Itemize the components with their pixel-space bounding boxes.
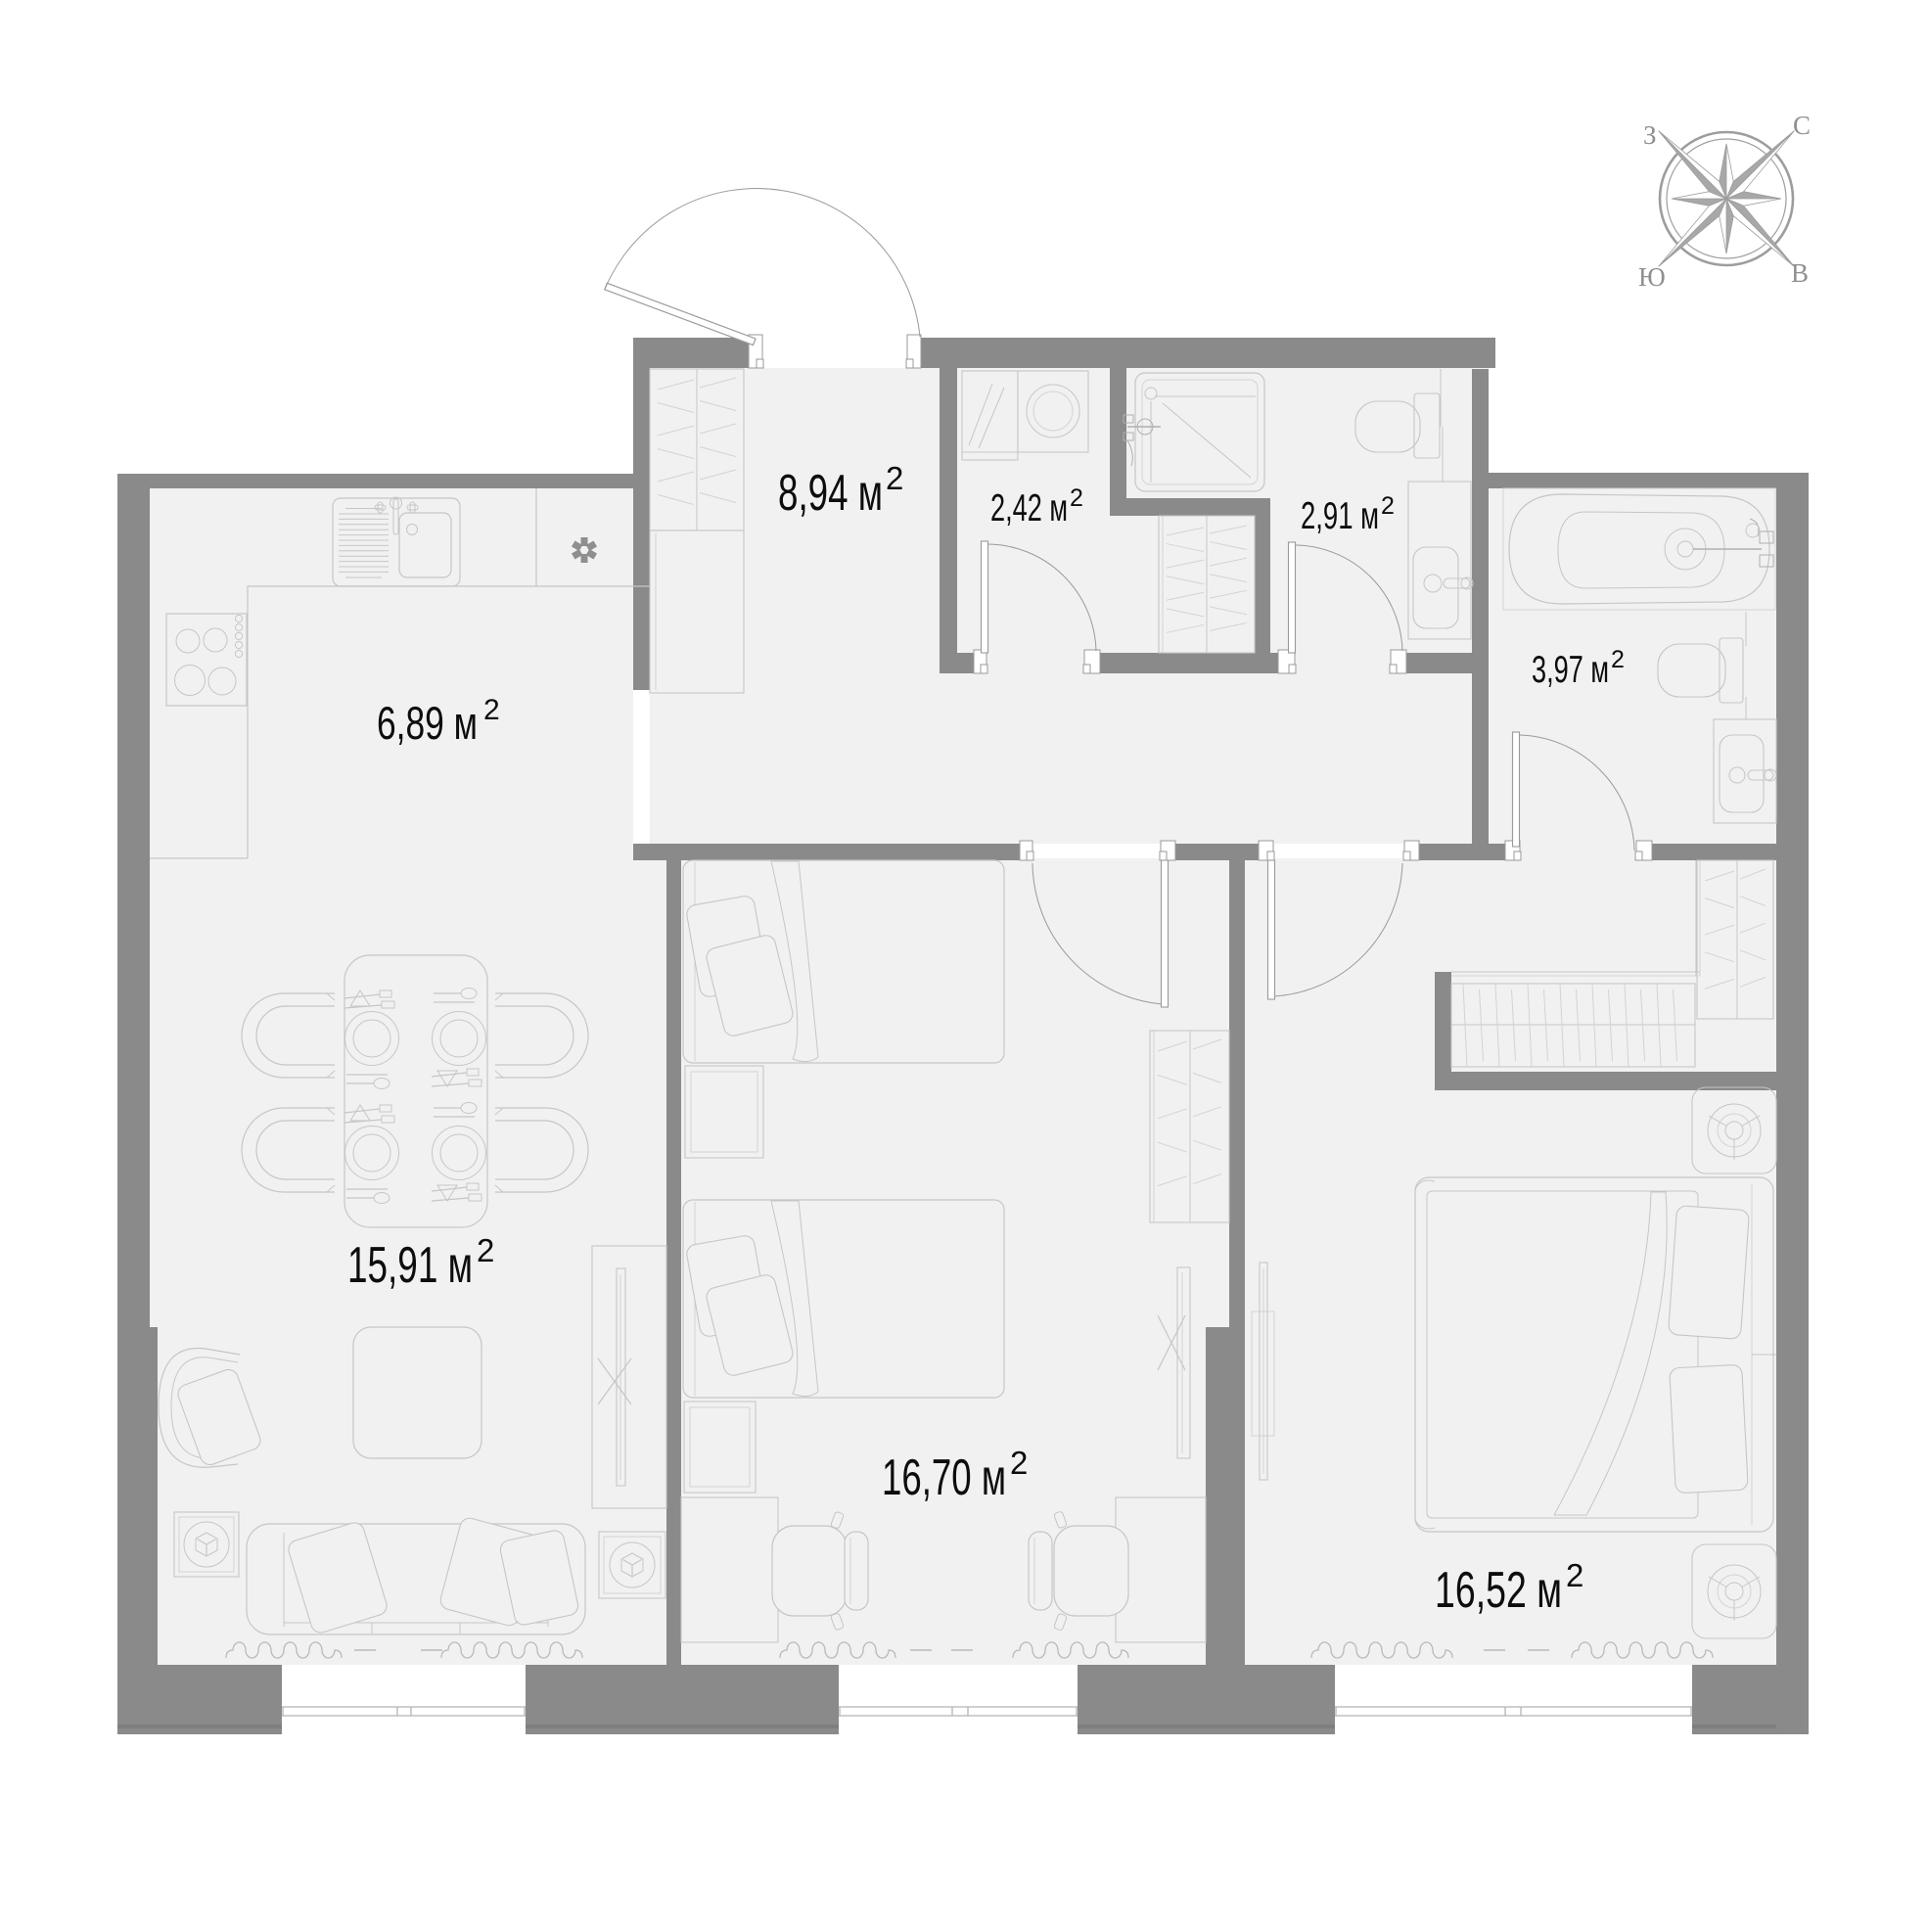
svg-text:В: В — [1791, 258, 1809, 288]
svg-text:Ю: Ю — [1638, 262, 1666, 292]
svg-text:2: 2 — [1010, 1445, 1028, 1481]
svg-text:16,70 м: 16,70 м — [882, 1449, 1006, 1506]
svg-text:3,97 м: 3,97 м — [1532, 649, 1609, 691]
svg-text:С: С — [1793, 111, 1811, 140]
svg-text:2: 2 — [1611, 646, 1625, 673]
svg-text:16,52 м: 16,52 м — [1435, 1562, 1562, 1619]
svg-text:2,42 м: 2,42 м — [990, 487, 1068, 529]
svg-text:2: 2 — [1566, 1557, 1583, 1593]
svg-text:З: З — [1643, 120, 1657, 150]
svg-text:6,89 м: 6,89 м — [377, 697, 478, 749]
svg-text:2: 2 — [1070, 484, 1083, 512]
svg-text:2: 2 — [886, 460, 903, 496]
svg-text:2: 2 — [483, 694, 500, 726]
svg-text:2: 2 — [1381, 492, 1395, 520]
svg-text:2: 2 — [477, 1232, 494, 1268]
svg-text:15,91 м: 15,91 м — [347, 1237, 473, 1294]
svg-text:8,94 м: 8,94 м — [778, 465, 883, 522]
svg-text:2,91 м: 2,91 м — [1301, 495, 1379, 537]
